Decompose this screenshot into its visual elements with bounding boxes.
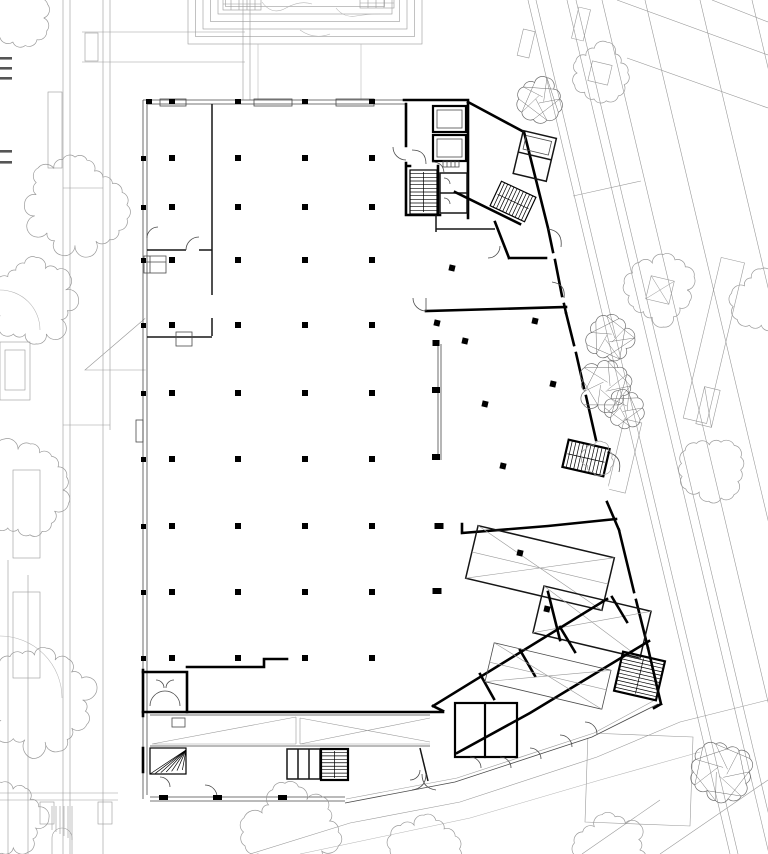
tree-deciduous [0, 257, 79, 345]
plaza-planting-squiggles [262, 2, 380, 36]
tree-deciduous [573, 41, 630, 103]
tree-deciduous [729, 268, 768, 331]
tree-deciduous [0, 647, 97, 758]
edge-legend-dashes [0, 57, 12, 164]
tree-conifer [691, 742, 753, 803]
tree-deciduous [387, 814, 461, 854]
site-plaza-steps [188, 0, 422, 100]
tree-deciduous [572, 812, 647, 854]
tree-deciduous [25, 155, 131, 257]
tree-deciduous [0, 439, 70, 537]
tree-conifer [586, 314, 635, 361]
building [136, 99, 661, 803]
floor-plan-image [0, 0, 768, 854]
tree-deciduous [0, 782, 49, 854]
tree-deciduous [679, 440, 744, 503]
tree-deciduous [0, 0, 49, 47]
plaza-table-grid-right [360, 0, 394, 8]
site-plan-canvas [0, 0, 768, 854]
tree-deciduous [623, 254, 695, 328]
plaza-table-grid-left [223, 0, 261, 10]
